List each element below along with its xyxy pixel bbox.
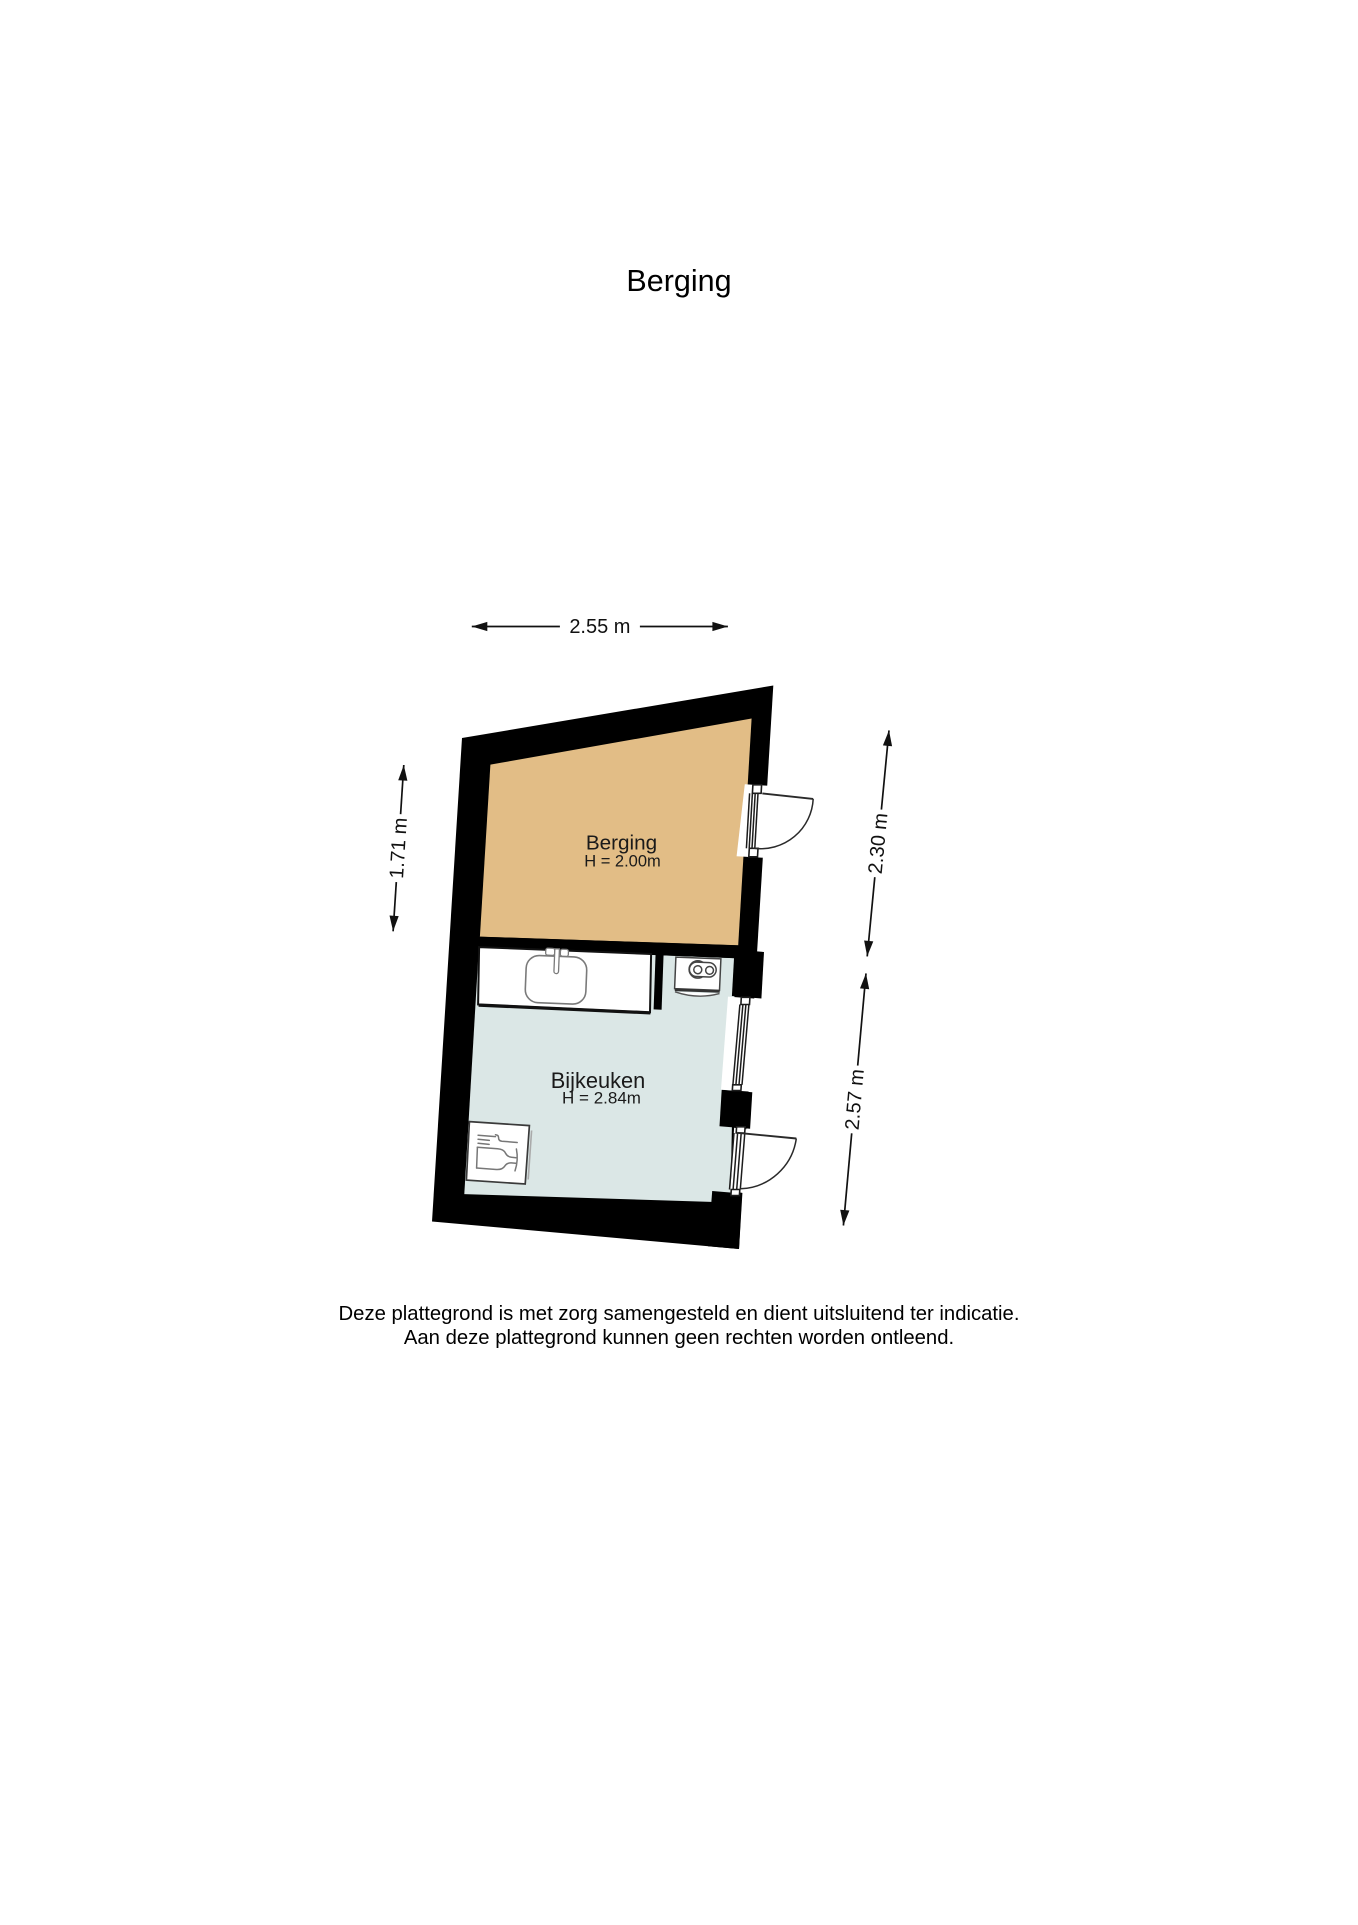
- svg-text:2.30 m: 2.30 m: [865, 812, 893, 875]
- svg-text:Berging: Berging: [626, 264, 731, 298]
- svg-text:2.57 m: 2.57 m: [842, 1068, 869, 1131]
- svg-text:H = 2.84m: H = 2.84m: [562, 1089, 641, 1108]
- svg-text:Aan deze plattegrond kunnen ge: Aan deze plattegrond kunnen geen rechten…: [404, 1327, 954, 1349]
- svg-text:1.71 m: 1.71 m: [386, 817, 412, 879]
- svg-text:Deze plattegrond is met zorg s: Deze plattegrond is met zorg samengestel…: [339, 1303, 1020, 1325]
- svg-text:Berging: Berging: [586, 832, 657, 855]
- svg-text:2.55 m: 2.55 m: [569, 616, 630, 638]
- svg-text:H = 2.00m: H = 2.00m: [584, 852, 661, 870]
